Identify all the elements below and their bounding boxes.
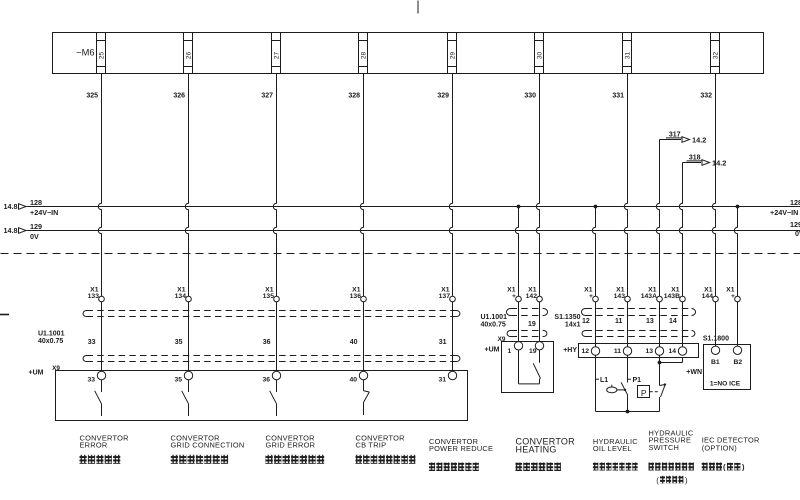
svg-text:ERROR: ERROR — [80, 440, 108, 449]
svg-text:12: 12 — [581, 348, 589, 355]
svg-text:0V: 0V — [795, 229, 800, 238]
svg-text:133: 133 — [88, 293, 100, 300]
svg-text:35: 35 — [175, 339, 183, 346]
svg-text:35: 35 — [174, 377, 182, 384]
svg-text:25: 25 — [99, 52, 106, 60]
svg-text:+HY: +HY — [563, 347, 577, 354]
svg-text:POWER REDUCE: POWER REDUCE — [429, 444, 493, 453]
svg-text:11: 11 — [615, 318, 623, 325]
svg-text:+24V−IN: +24V−IN — [770, 208, 798, 217]
svg-text:+UM: +UM — [29, 370, 44, 377]
svg-text:327: 327 — [261, 93, 273, 100]
svg-text:33: 33 — [87, 377, 95, 384]
svg-text:26: 26 — [186, 52, 193, 60]
svg-text:129: 129 — [790, 220, 800, 229]
svg-text:U1.1001: U1.1001 — [481, 314, 508, 321]
svg-text:142: 142 — [526, 293, 538, 300]
svg-text:330: 330 — [524, 93, 536, 100]
svg-text:14: 14 — [669, 318, 677, 325]
svg-text:CB TRIP: CB TRIP — [356, 440, 387, 449]
svg-text:13: 13 — [646, 318, 654, 325]
svg-text:129: 129 — [30, 222, 42, 231]
svg-text:27: 27 — [274, 52, 281, 60]
svg-text:S1.1350: S1.1350 — [554, 314, 580, 321]
svg-text:143A: 143A — [641, 293, 657, 300]
svg-text:(: ( — [656, 476, 659, 485]
svg-text:31: 31 — [625, 52, 632, 60]
svg-text:1=NO ICE: 1=NO ICE — [710, 381, 741, 388]
svg-text:1: 1 — [508, 348, 512, 355]
svg-text:144: 144 — [702, 293, 714, 300]
svg-text:14.2: 14.2 — [692, 135, 706, 144]
svg-text:SWITCH: SWITCH — [649, 443, 680, 452]
svg-text:325: 325 — [86, 93, 98, 100]
svg-text:31: 31 — [439, 339, 447, 346]
svg-text:331: 331 — [612, 93, 624, 100]
svg-text:14.8: 14.8 — [4, 202, 18, 211]
svg-text:14x1: 14x1 — [565, 321, 581, 328]
svg-text:14.8: 14.8 — [4, 226, 18, 235]
svg-text:40: 40 — [350, 339, 358, 346]
svg-text:136: 136 — [350, 293, 362, 300]
svg-text:B2: B2 — [734, 359, 743, 366]
svg-text:19: 19 — [529, 348, 537, 355]
svg-text:−M6: −M6 — [76, 47, 94, 57]
svg-text:143B: 143B — [664, 293, 680, 300]
svg-text:(OPTION): (OPTION) — [702, 444, 737, 453]
svg-text:134: 134 — [175, 293, 187, 300]
svg-text:28: 28 — [361, 52, 368, 60]
svg-text:): ) — [685, 476, 688, 485]
svg-text:11: 11 — [614, 348, 621, 355]
svg-text:14.2: 14.2 — [712, 158, 726, 167]
svg-text:36: 36 — [263, 339, 271, 346]
svg-text:135: 135 — [263, 293, 275, 300]
svg-text:143: 143 — [614, 293, 626, 300]
svg-text:P1: P1 — [633, 377, 642, 384]
svg-text:U1.1001: U1.1001 — [38, 331, 65, 338]
svg-text:326: 326 — [173, 93, 185, 100]
svg-text:30: 30 — [537, 52, 544, 60]
svg-text:40x0.75: 40x0.75 — [481, 321, 506, 328]
svg-text:L1: L1 — [600, 377, 608, 384]
svg-text:+UM: +UM — [485, 347, 500, 354]
svg-text:B1: B1 — [711, 359, 720, 366]
svg-text:P: P — [641, 388, 647, 398]
svg-text:OIL LEVEL: OIL LEVEL — [593, 444, 632, 453]
svg-text:328: 328 — [348, 93, 360, 100]
svg-text:137: 137 — [439, 293, 451, 300]
svg-text:GRID CONNECTION: GRID CONNECTION — [171, 440, 245, 449]
svg-text:40: 40 — [349, 377, 357, 384]
svg-text:14: 14 — [668, 348, 676, 355]
svg-text:40x0.75: 40x0.75 — [38, 338, 63, 345]
svg-text:128: 128 — [30, 198, 42, 207]
svg-text:19: 19 — [528, 321, 536, 328]
svg-text:GRID ERROR: GRID ERROR — [266, 440, 316, 449]
svg-text:+24V−IN: +24V−IN — [30, 208, 58, 217]
svg-text:332: 332 — [700, 93, 712, 100]
svg-text:0V: 0V — [30, 232, 39, 241]
svg-text:329: 329 — [437, 93, 449, 100]
svg-text:29: 29 — [450, 52, 457, 60]
svg-text:128: 128 — [790, 198, 800, 207]
svg-text:31: 31 — [438, 377, 446, 384]
svg-text:32: 32 — [713, 52, 720, 60]
svg-text:+WN: +WN — [686, 369, 702, 376]
svg-text:13: 13 — [645, 348, 653, 355]
svg-text:36: 36 — [262, 377, 270, 384]
svg-text:HEATING: HEATING — [516, 445, 557, 455]
svg-text:33: 33 — [88, 339, 96, 346]
svg-text:12: 12 — [582, 318, 590, 325]
